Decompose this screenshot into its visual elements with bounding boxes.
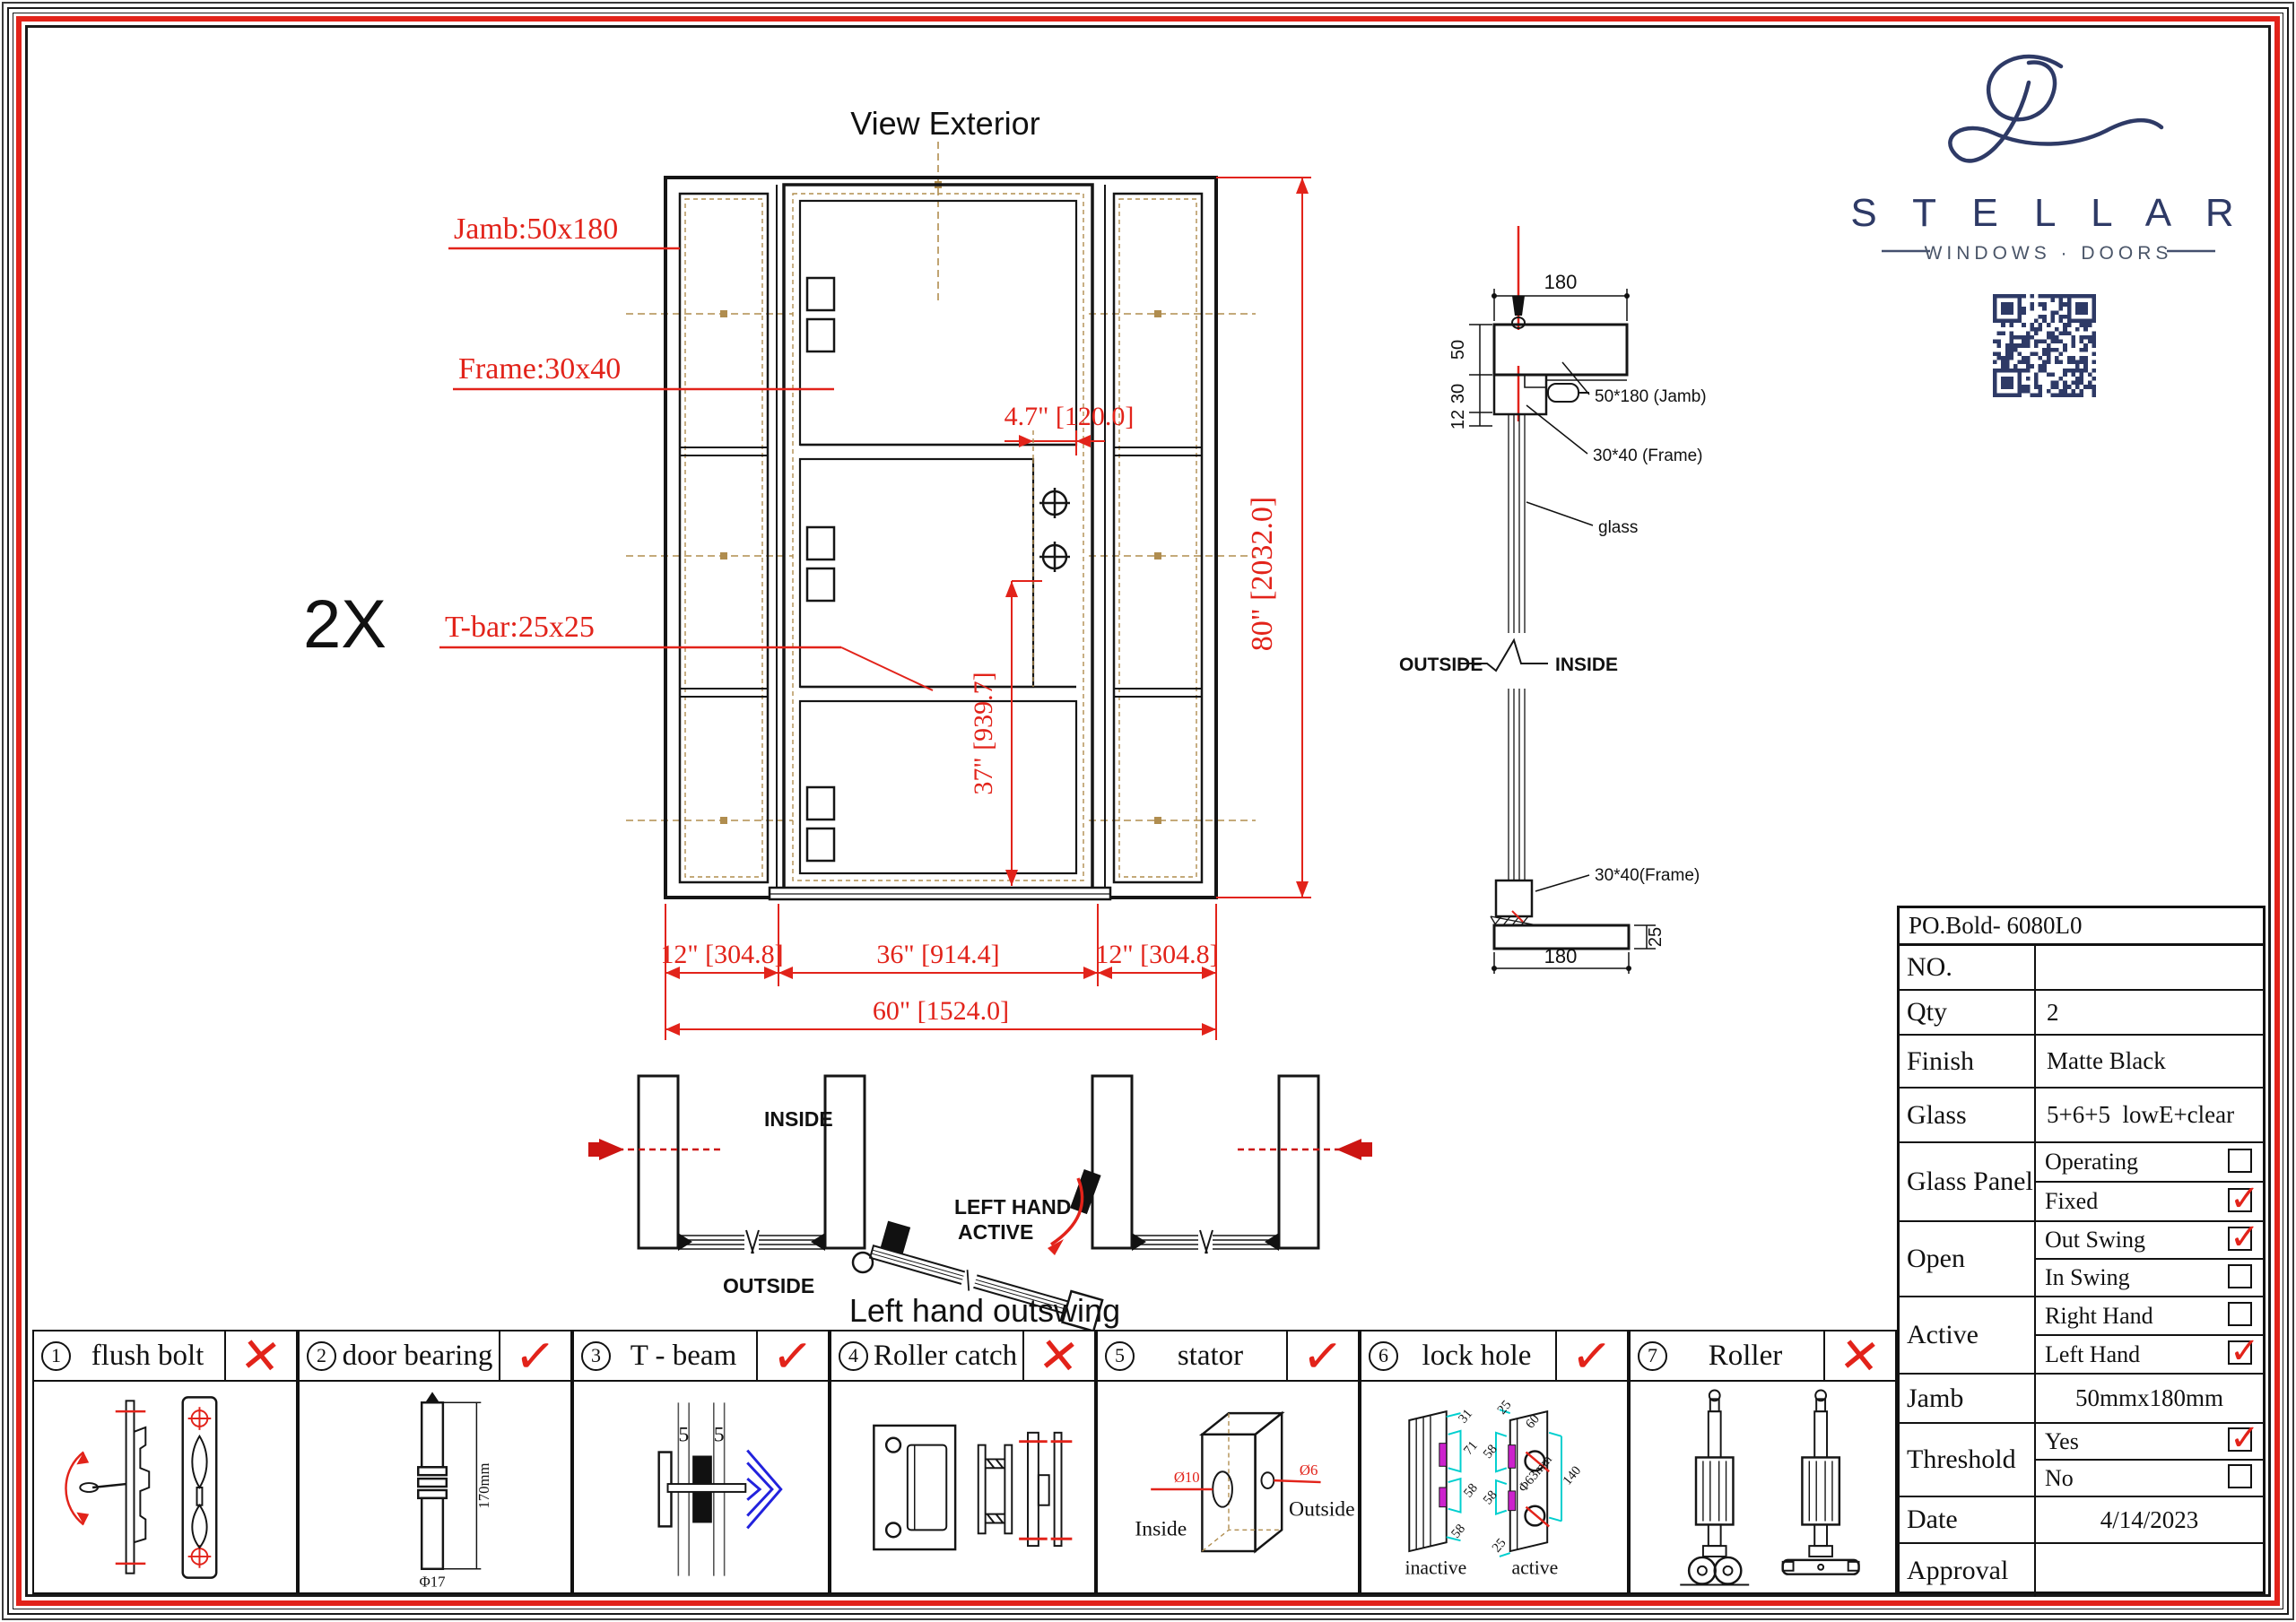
door-frame [665,178,1216,898]
brand-name: S T E L L A R [1850,191,2246,235]
po-number: PO.Bold- 6080L0 [1900,908,2263,946]
lockhole-inactive-label: inactive [1405,1557,1467,1579]
sidelite-left [680,194,768,882]
checkbox-threshold-no[interactable] [2228,1464,2252,1488]
t-beam-dim-1: 5 [678,1424,689,1447]
item-number: 6 [1369,1341,1398,1371]
plan-caption: Left hand outswing [849,1292,1120,1329]
stator-drawing: Ø10 Ø6 Inside Outside [1098,1382,1358,1592]
table-row-qty: Qty 2 [1900,991,2263,1036]
item-name: lock hole [1398,1340,1555,1373]
item-number: 3 [581,1341,611,1371]
table-row-glass: Glass 5+6+5 lowE+clear [1900,1089,2263,1143]
status-mark: ✓ [499,1331,570,1380]
roller-unit-2 [1783,1390,1859,1574]
table-row-active: Active Right Hand Left Hand ✓ [1900,1297,2263,1375]
sidelite-right [1114,194,1202,882]
section-dim-25: 25 [1646,927,1665,947]
section-frame-label: 30*40 (Frame) [1593,447,1703,465]
checkbox-out-swing[interactable]: ✓ [2228,1227,2252,1251]
status-mark: ✕ [1022,1331,1094,1380]
checkbox-operating[interactable] [2228,1149,2252,1173]
door-handle [1039,488,1070,572]
bearing-length: 170mm [475,1462,492,1508]
section-dim-180-top: 180 [1544,271,1578,293]
dim-door: 36" [914.4] [876,940,999,969]
stator-hole-2: Ø6 [1300,1462,1318,1479]
lock-hole-drawing: 31 71 58 58 25 60 58 58 25 140 Φ63mm ina… [1361,1382,1627,1592]
checkbox-right-hand[interactable] [2228,1302,2252,1326]
hardware-cell-door-bearing: 2 door bearing ✓ 170mm Φ17 [298,1330,572,1594]
dim-left-sidelite: 12" [304.8] [660,940,783,969]
quantity-note: 2X [303,586,387,663]
lockhole-active-label: active [1511,1557,1558,1579]
item-name: T - beam [611,1340,756,1373]
center-marks [720,181,1161,824]
status-mark: ✓ [1286,1331,1358,1380]
checkbox-left-hand[interactable]: ✓ [2228,1340,2252,1365]
hardware-cell-roller-catch: 4 Roller catch ✕ [830,1330,1096,1594]
brand-tagline: WINDOWS · DOORS [1925,243,2173,264]
jamb-label: Jamb:50x180 [454,213,618,246]
frame-label: Frame:30x40 [458,352,621,386]
section-dim-12: 12 [1448,410,1468,429]
dim-handle-height: 37" [939.7] [969,672,998,794]
cross-section [1460,226,1629,949]
hardware-cell-stator: 5 stator ✓ Ø10 [1096,1330,1360,1594]
lockhole-dim: 71 [1461,1438,1481,1458]
stator-inside: Inside [1135,1517,1187,1540]
item-name: Roller catch [868,1340,1022,1373]
stator-hole-1: Ø10 [1174,1469,1200,1486]
dim-height: 80" [2032.0] [1246,497,1279,652]
table-row-no: NO. [1900,946,2263,991]
section-dim-50: 50 [1448,340,1468,360]
qr-code [1993,294,2096,397]
item-name: stator [1135,1340,1286,1373]
dim-right-sidelite: 12" [304.8] [1095,940,1218,969]
hardware-cell-lock-hole: 6 lock hole ✓ [1360,1330,1629,1594]
roller-drawing [1631,1382,1895,1592]
dim-total-width: 60" [1524.0] [873,996,1009,1026]
table-row-approval: Approval [1900,1544,2263,1597]
bearing-diameter: Φ17 [420,1574,446,1591]
lockhole-dim: 25 [1490,1536,1509,1556]
brand-logo [1950,56,2161,160]
logo-swash [1950,82,2161,160]
hardware-cell-roller: 7 Roller ✕ [1629,1330,1897,1594]
table-row-threshold: Threshold Yes ✓ No [1900,1424,2263,1497]
section-annotations: 180 50 30 12 50*180 (Jamb) 30*40 (Frame)… [1399,271,1707,974]
tbar-label: T-bar:25x25 [445,611,595,644]
plan-outside-label: OUTSIDE [723,1274,814,1297]
hardware-cell-t-beam: 3 T - beam ✓ 5 5 [572,1330,830,1594]
table-row-glass-panel: Glass Panel Operating Fixed ✓ [1900,1143,2263,1222]
lockhole-dim: 31 [1456,1407,1475,1427]
table-row-date: Date 4/14/2023 [1900,1497,2263,1544]
item-number: 4 [839,1341,868,1371]
lockhole-dim: 58 [1481,1488,1500,1508]
item-name: Roller [1667,1340,1823,1373]
section-jamb-label: 50*180 (Jamb) [1595,387,1707,406]
plan-hand-label-2: ACTIVE [958,1220,1033,1244]
checkbox-fixed[interactable]: ✓ [2228,1188,2252,1212]
status-mark: ✓ [756,1331,828,1380]
lockhole-dim: 58 [1481,1442,1500,1462]
plan-hand-label-1: LEFT HAND [954,1195,1071,1219]
frame-section [1494,375,1546,414]
stator-outside: Outside [1289,1498,1355,1522]
checkbox-in-swing[interactable] [2228,1264,2252,1288]
drawing-sheet: View Exterior [0,0,2296,1622]
item-number: 7 [1638,1341,1667,1371]
centerlines [626,142,1256,820]
lockhole-dim: Φ63mm [1516,1453,1555,1496]
status-mark: ✕ [1823,1331,1895,1380]
item-number: 2 [307,1341,336,1371]
door-bearing-drawing: 170mm Φ17 [300,1382,570,1592]
hardware-cell-flush-bolt: 1 flush bolt ✕ [32,1330,298,1594]
jamb-section [1494,325,1627,375]
dim-lock: 4.7" [120.0] [1004,402,1135,431]
plan-inside-label: INSIDE [764,1107,833,1131]
item-name: door bearing [336,1340,499,1373]
roller-catch-drawing [831,1382,1094,1592]
spec-table: PO.Bold- 6080L0 NO. Qty 2 Finish Matte B… [1897,906,2266,1594]
table-row-open: Open Out Swing ✓ In Swing [1900,1222,2263,1297]
section-outside-label: OUTSIDE [1399,655,1483,675]
lockhole-dim: 25 [1495,1398,1515,1418]
status-mark: ✕ [224,1331,296,1380]
plan-labels: INSIDE OUTSIDE LEFT HAND ACTIVE Left han… [723,1107,1120,1329]
item-number: 5 [1105,1341,1135,1371]
door-leaf [784,185,1092,889]
lockhole-dim: 60 [1523,1412,1543,1432]
t-beam-dim-2: 5 [714,1424,725,1447]
view-title: View Exterior [850,105,1039,142]
table-row-finish: Finish Matte Black [1900,1036,2263,1089]
lockhole-dim: 140 [1561,1463,1585,1488]
t-beam-drawing: 5 5 [574,1382,828,1592]
section-glass-label: glass [1598,518,1638,537]
table-row-jamb: Jamb 50mmx180mm [1900,1375,2263,1424]
lockhole-dim: 58 [1461,1481,1481,1501]
section-inside-label: INSIDE [1555,655,1618,675]
section-dim-30: 30 [1448,384,1468,403]
item-name: flush bolt [71,1340,224,1373]
checkbox-threshold-yes[interactable]: ✓ [2228,1427,2252,1452]
item-number: 1 [41,1341,71,1371]
section-frame-btm-label: 30*40(Frame) [1595,866,1700,885]
flush-bolt-drawing [34,1382,296,1592]
status-mark: ✓ [1555,1331,1627,1380]
hinges [807,278,834,861]
logo-s-mark [1988,56,2061,119]
door-elevation: View Exterior [626,105,1256,899]
roller-unit-1 [1680,1390,1749,1584]
section-dim-180-btm: 180 [1544,945,1578,967]
